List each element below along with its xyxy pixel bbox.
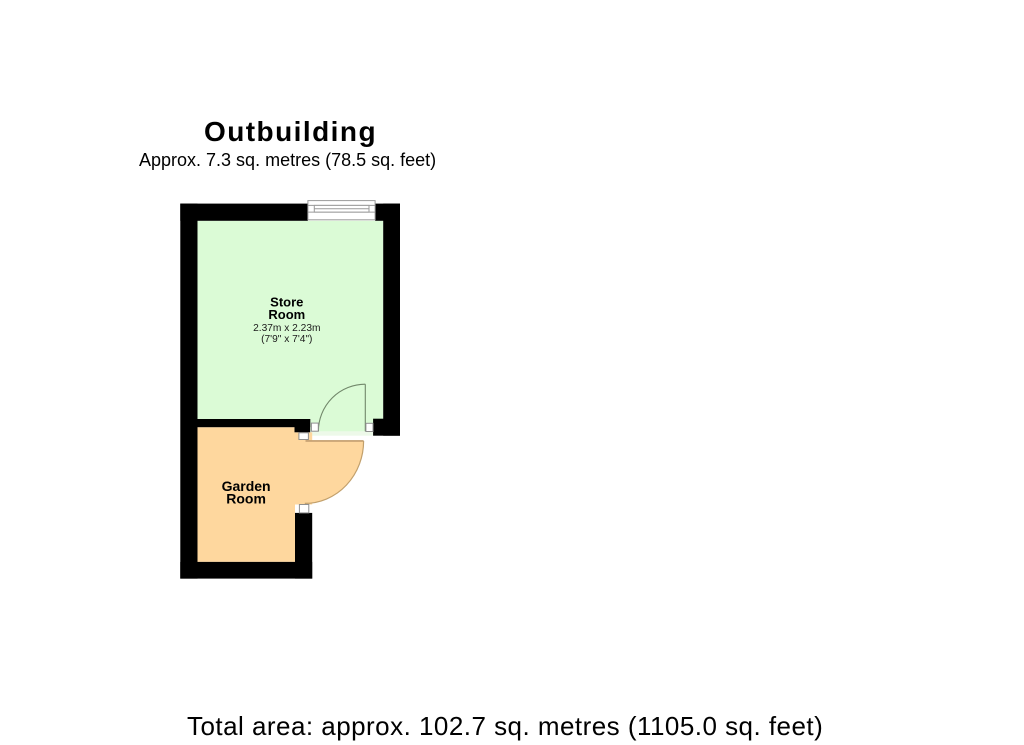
svg-text:Room: Room <box>226 491 266 507</box>
svg-text:2.37m x 2.23m: 2.37m x 2.23m <box>253 323 320 334</box>
svg-text:Room: Room <box>268 307 305 322</box>
svg-text:(7'9" x 7'4"): (7'9" x 7'4") <box>261 334 312 345</box>
